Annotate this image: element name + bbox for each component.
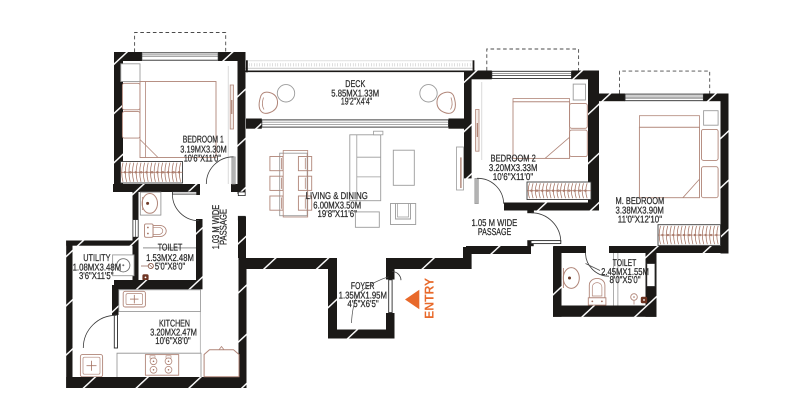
svg-text:5'0"X8'0": 5'0"X8'0"	[155, 261, 186, 272]
svg-text:8'0"X5'0": 8'0"X5'0"	[610, 275, 641, 286]
svg-text:ENTRY: ENTRY	[422, 277, 437, 318]
svg-text:PASSAGE: PASSAGE	[478, 227, 512, 238]
svg-text:10'6"X11'0": 10'6"X11'0"	[493, 172, 534, 183]
svg-text:TOILET: TOILET	[158, 242, 183, 253]
svg-text:3'6"X11'5": 3'6"X11'5"	[79, 271, 114, 282]
svg-text:19'2"X4'4": 19'2"X4'4"	[341, 97, 373, 108]
svg-text:10'6"X11'0": 10'6"X11'0"	[184, 153, 222, 164]
svg-text:10'6"X8'0": 10'6"X8'0"	[155, 336, 191, 347]
svg-text:PASSAGE: PASSAGE	[219, 209, 230, 245]
svg-text:19'8"X11'6": 19'8"X11'6"	[318, 209, 358, 220]
svg-text:4'5"X6'5": 4'5"X6'5"	[347, 299, 379, 310]
svg-text:11'0"X12'10": 11'0"X12'10"	[618, 214, 663, 225]
